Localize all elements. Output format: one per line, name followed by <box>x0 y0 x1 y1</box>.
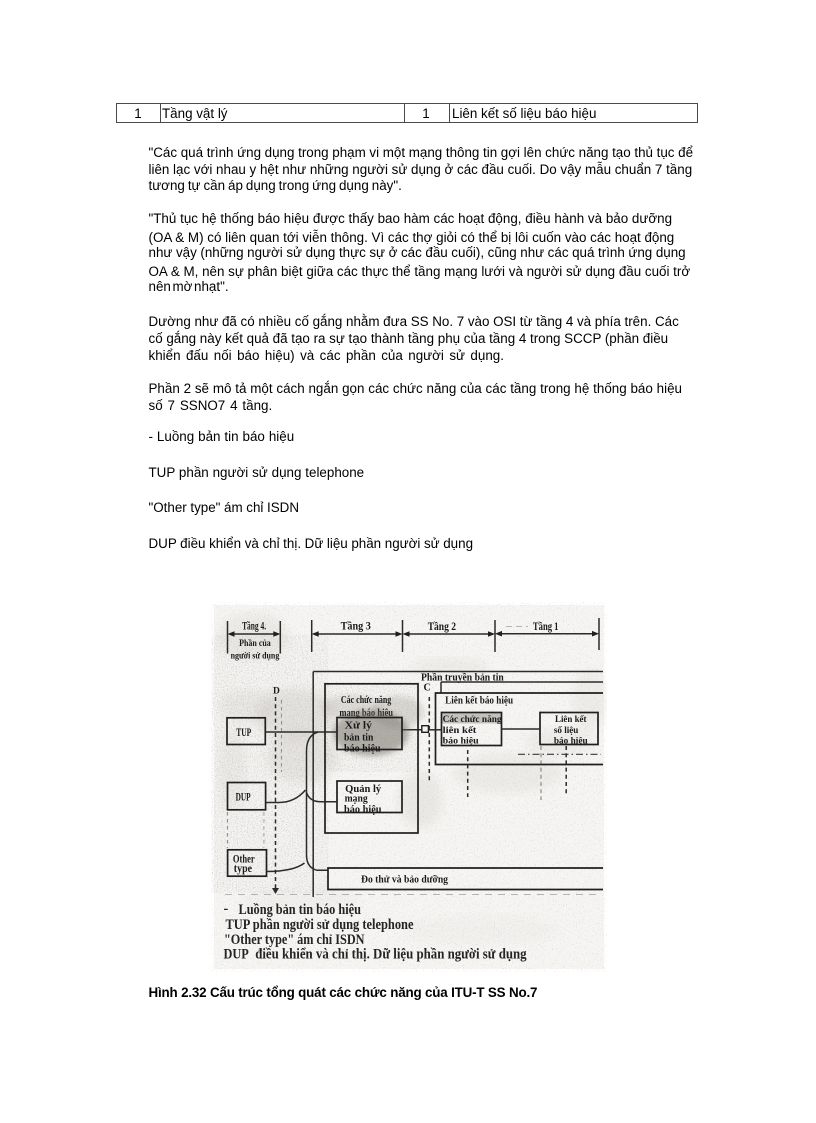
svg-text:Các chức năng: Các chức năng <box>443 715 502 725</box>
svg-text:Tầng 1: Tầng 1 <box>533 620 559 633</box>
svg-text:TUP phần người sử dụng telepho: TUP phần người sử dụng telephone <box>226 917 414 933</box>
svg-text:D: D <box>273 687 280 697</box>
svg-text:điều khiển và chỉ thị. Dữ liệu: điều khiển và chỉ thị. Dữ liệu phần ngườ… <box>255 947 526 963</box>
svg-text:TUP: TUP <box>236 725 251 739</box>
svg-text:báo hiệu: báo hiệu <box>344 743 381 754</box>
svg-text:-: - <box>224 901 229 917</box>
svg-text:type: type <box>234 863 252 875</box>
svg-text:DUP: DUP <box>236 790 251 804</box>
svg-text:DUP: DUP <box>224 947 250 963</box>
svg-text:số liệu: số liệu <box>554 725 578 736</box>
svg-text:Tầng 4.: Tầng 4. <box>242 620 266 633</box>
svg-text:Liên kết báo hiệu: Liên kết báo hiệu <box>445 696 513 707</box>
svg-text:C: C <box>424 683 431 694</box>
svg-text:liên kết: liên kết <box>443 725 478 736</box>
svg-text:Tầng 3: Tầng 3 <box>341 620 371 633</box>
svg-text:bản tin: bản tin <box>344 732 374 743</box>
svg-text:người sử dụng: người sử dụng <box>231 651 280 661</box>
svg-text:Luồng bản tin báo hiệu: Luồng bản tin báo hiệu <box>239 902 362 918</box>
svg-text:Xử lý: Xử lý <box>345 721 373 732</box>
svg-text:Tầng 2: Tầng 2 <box>428 620 456 633</box>
svg-text:mạng: mạng <box>345 794 369 805</box>
svg-text:"Other type" ám chỉ ISDN: "Other type" ám chỉ ISDN <box>224 932 365 948</box>
svg-text:Liên kết: Liên kết <box>555 714 587 725</box>
svg-text:Các chức năng: Các chức năng <box>341 695 392 706</box>
svg-text:Phần của: Phần của <box>239 638 271 649</box>
svg-text:báo hiệu: báo hiệu <box>554 736 588 746</box>
svg-text:Đo thử và bảo dưỡng: Đo thử và bảo dưỡng <box>361 875 449 886</box>
svg-text:báo hiệu: báo hiệu <box>344 804 382 815</box>
svg-text:báo hiệu: báo hiệu <box>443 736 479 746</box>
